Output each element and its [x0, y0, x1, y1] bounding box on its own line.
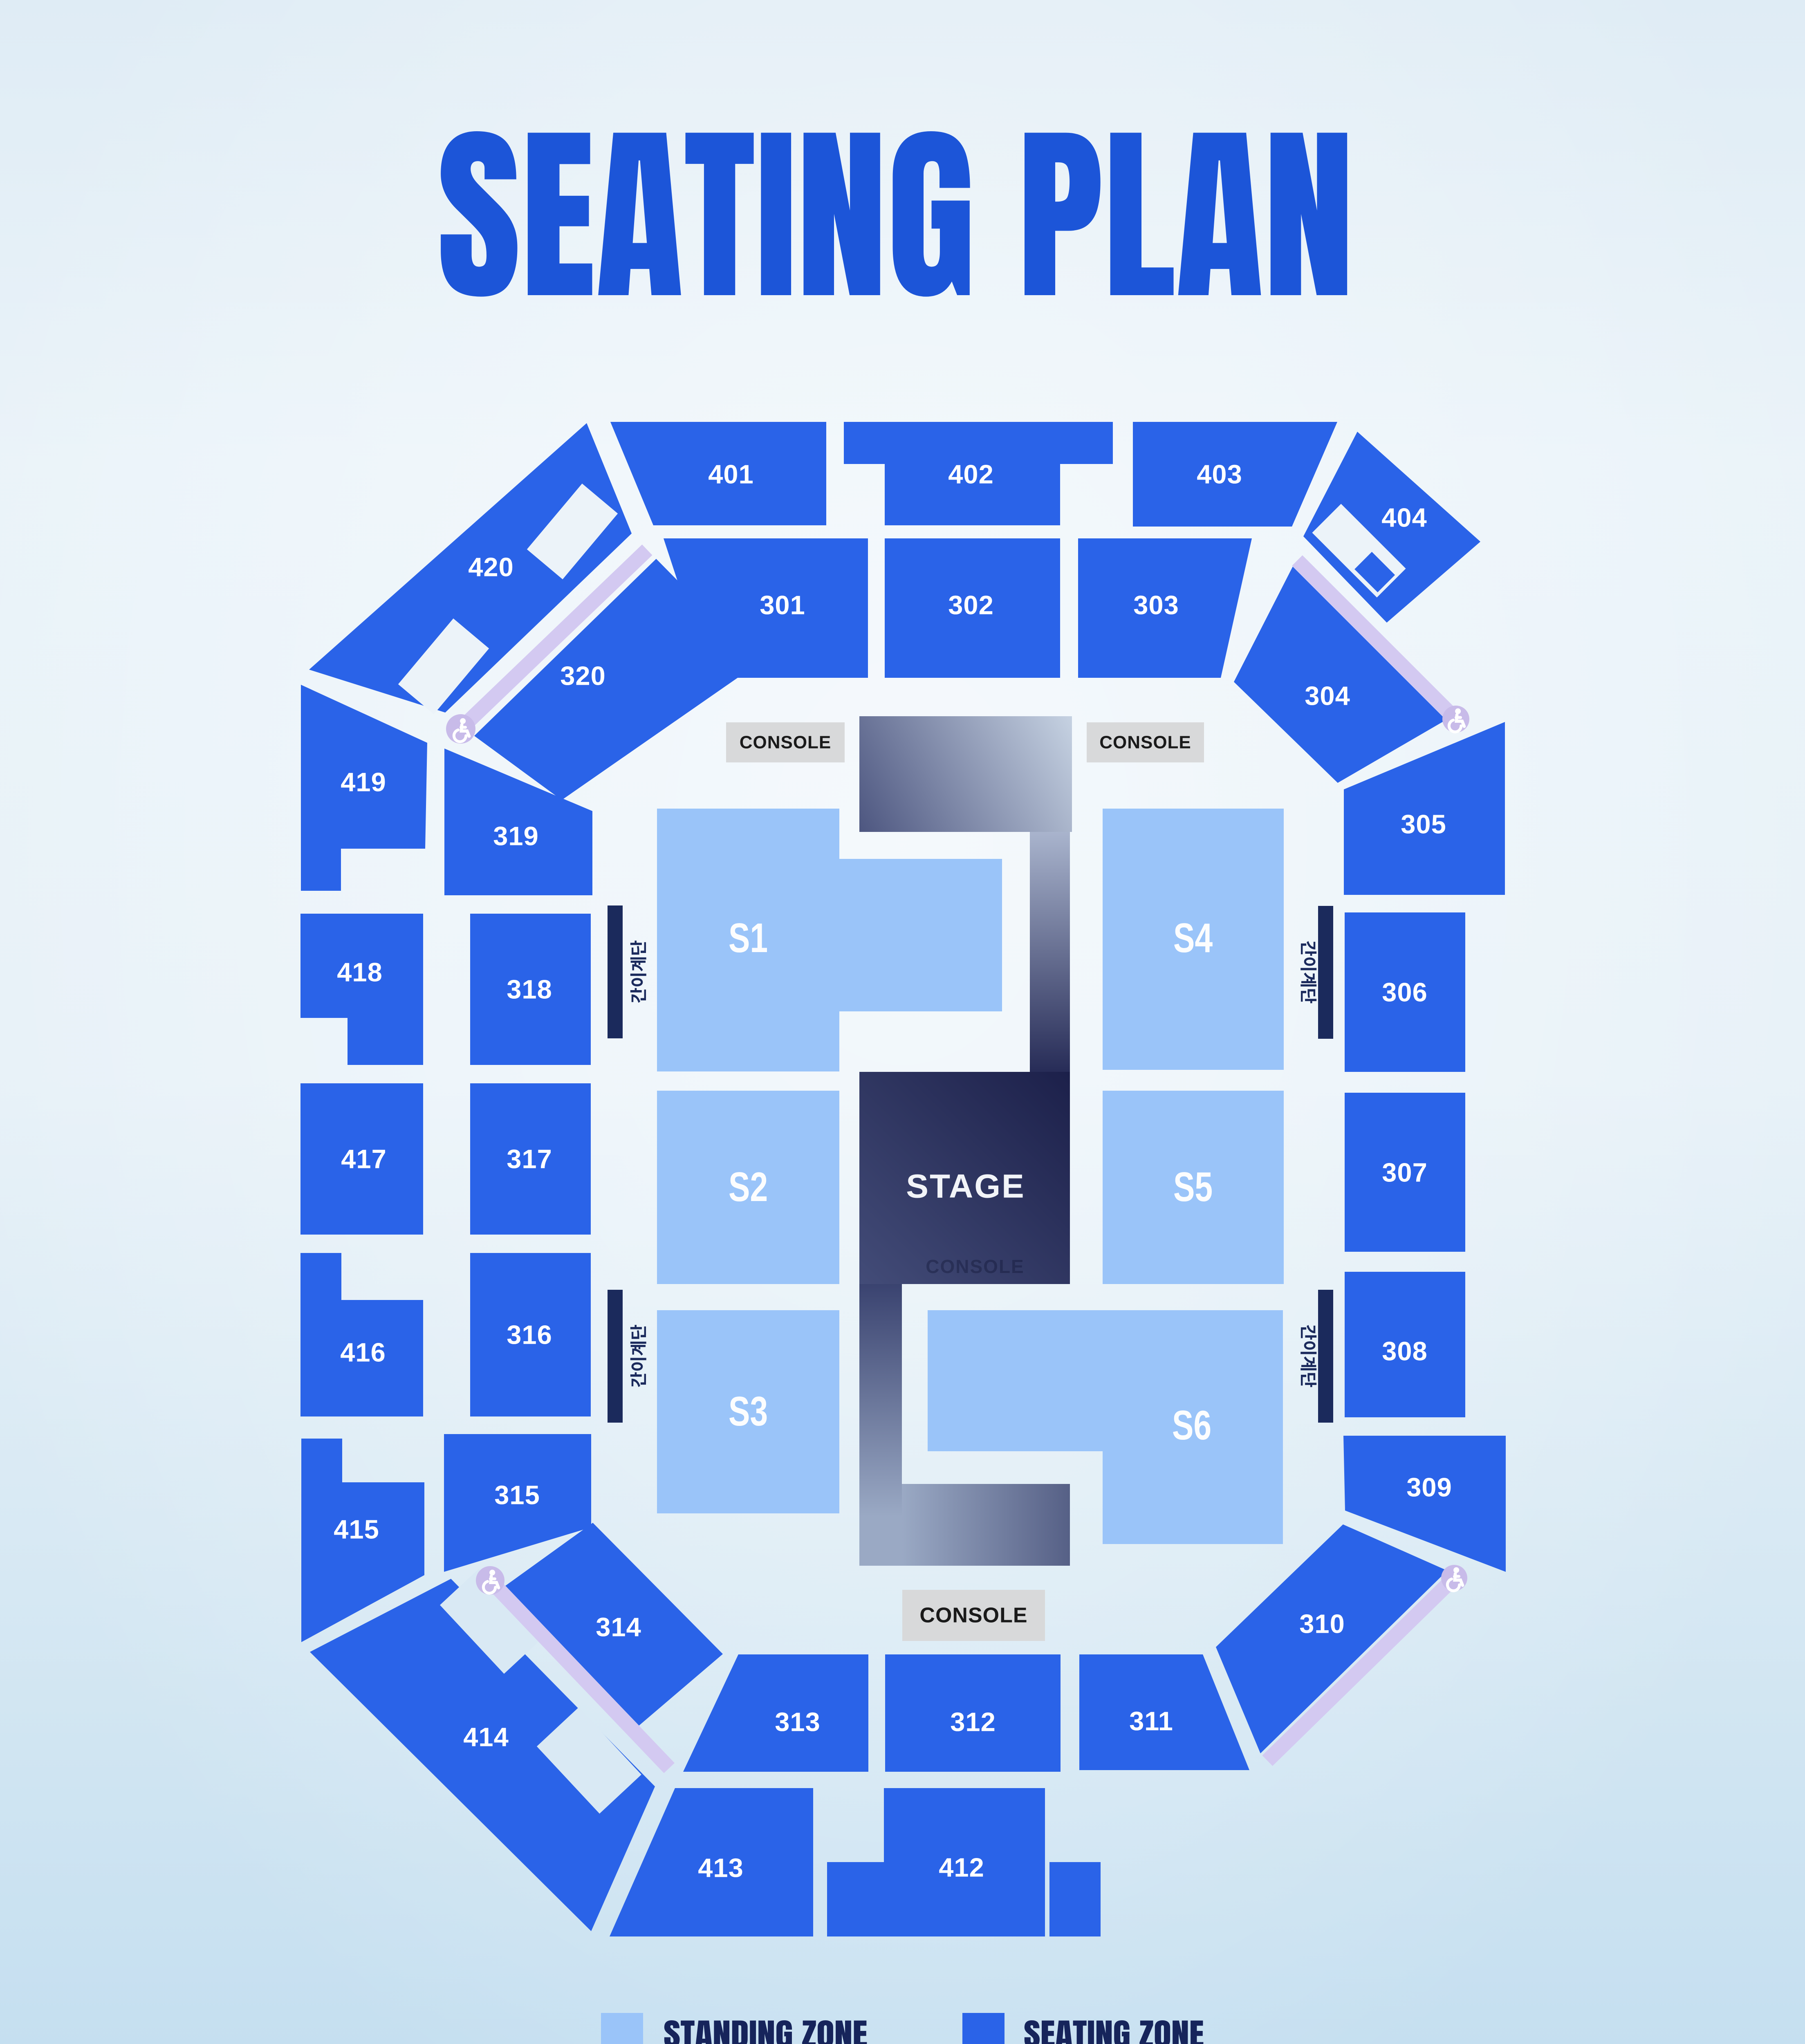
svg-text:416: 416: [340, 1338, 386, 1367]
svg-text:S3: S3: [729, 1389, 768, 1435]
svg-text:417: 417: [341, 1144, 386, 1174]
svg-text:401: 401: [708, 459, 753, 489]
svg-text:413: 413: [698, 1853, 743, 1883]
svg-text:S6: S6: [1172, 1403, 1211, 1449]
svg-text:312: 312: [950, 1707, 996, 1737]
svg-text:412: 412: [939, 1853, 984, 1883]
svg-text:303: 303: [1133, 590, 1179, 620]
svg-text:404: 404: [1381, 503, 1427, 533]
svg-text:CONSOLE: CONSOLE: [1099, 733, 1191, 753]
svg-text:402: 402: [948, 459, 993, 489]
svg-text:418: 418: [337, 957, 382, 987]
svg-text:307: 307: [1382, 1158, 1427, 1188]
svg-text:CONSOLE: CONSOLE: [740, 733, 832, 753]
svg-text:318: 318: [507, 975, 552, 1004]
svg-text:304: 304: [1305, 681, 1350, 711]
svg-text:309: 309: [1406, 1472, 1452, 1502]
svg-text:S4: S4: [1173, 915, 1213, 961]
svg-text:306: 306: [1382, 977, 1427, 1007]
svg-text:STAGE: STAGE: [906, 1168, 1025, 1205]
svg-text:S2: S2: [729, 1164, 768, 1210]
svg-text:419: 419: [341, 767, 386, 797]
svg-text:317: 317: [507, 1144, 552, 1174]
svg-text:315: 315: [494, 1480, 540, 1510]
svg-text:S5: S5: [1173, 1164, 1213, 1210]
svg-text:319: 319: [493, 821, 538, 851]
svg-text:305: 305: [1401, 809, 1446, 839]
svg-text:415: 415: [334, 1515, 379, 1544]
svg-text:301: 301: [760, 590, 805, 620]
svg-text:414: 414: [463, 1722, 509, 1752]
svg-text:308: 308: [1382, 1336, 1427, 1366]
svg-text:302: 302: [948, 590, 993, 620]
svg-text:313: 313: [775, 1707, 820, 1737]
svg-text:S1: S1: [729, 915, 768, 961]
svg-text:403: 403: [1197, 459, 1242, 489]
svg-text:311: 311: [1129, 1706, 1173, 1736]
svg-text:310: 310: [1299, 1609, 1345, 1639]
svg-text:CONSOLE: CONSOLE: [919, 1604, 1027, 1627]
svg-text:314: 314: [596, 1612, 641, 1642]
svg-text:CONSOLE: CONSOLE: [926, 1256, 1024, 1277]
svg-text:420: 420: [468, 552, 513, 582]
svg-text:320: 320: [560, 661, 605, 691]
svg-text:316: 316: [507, 1320, 552, 1350]
